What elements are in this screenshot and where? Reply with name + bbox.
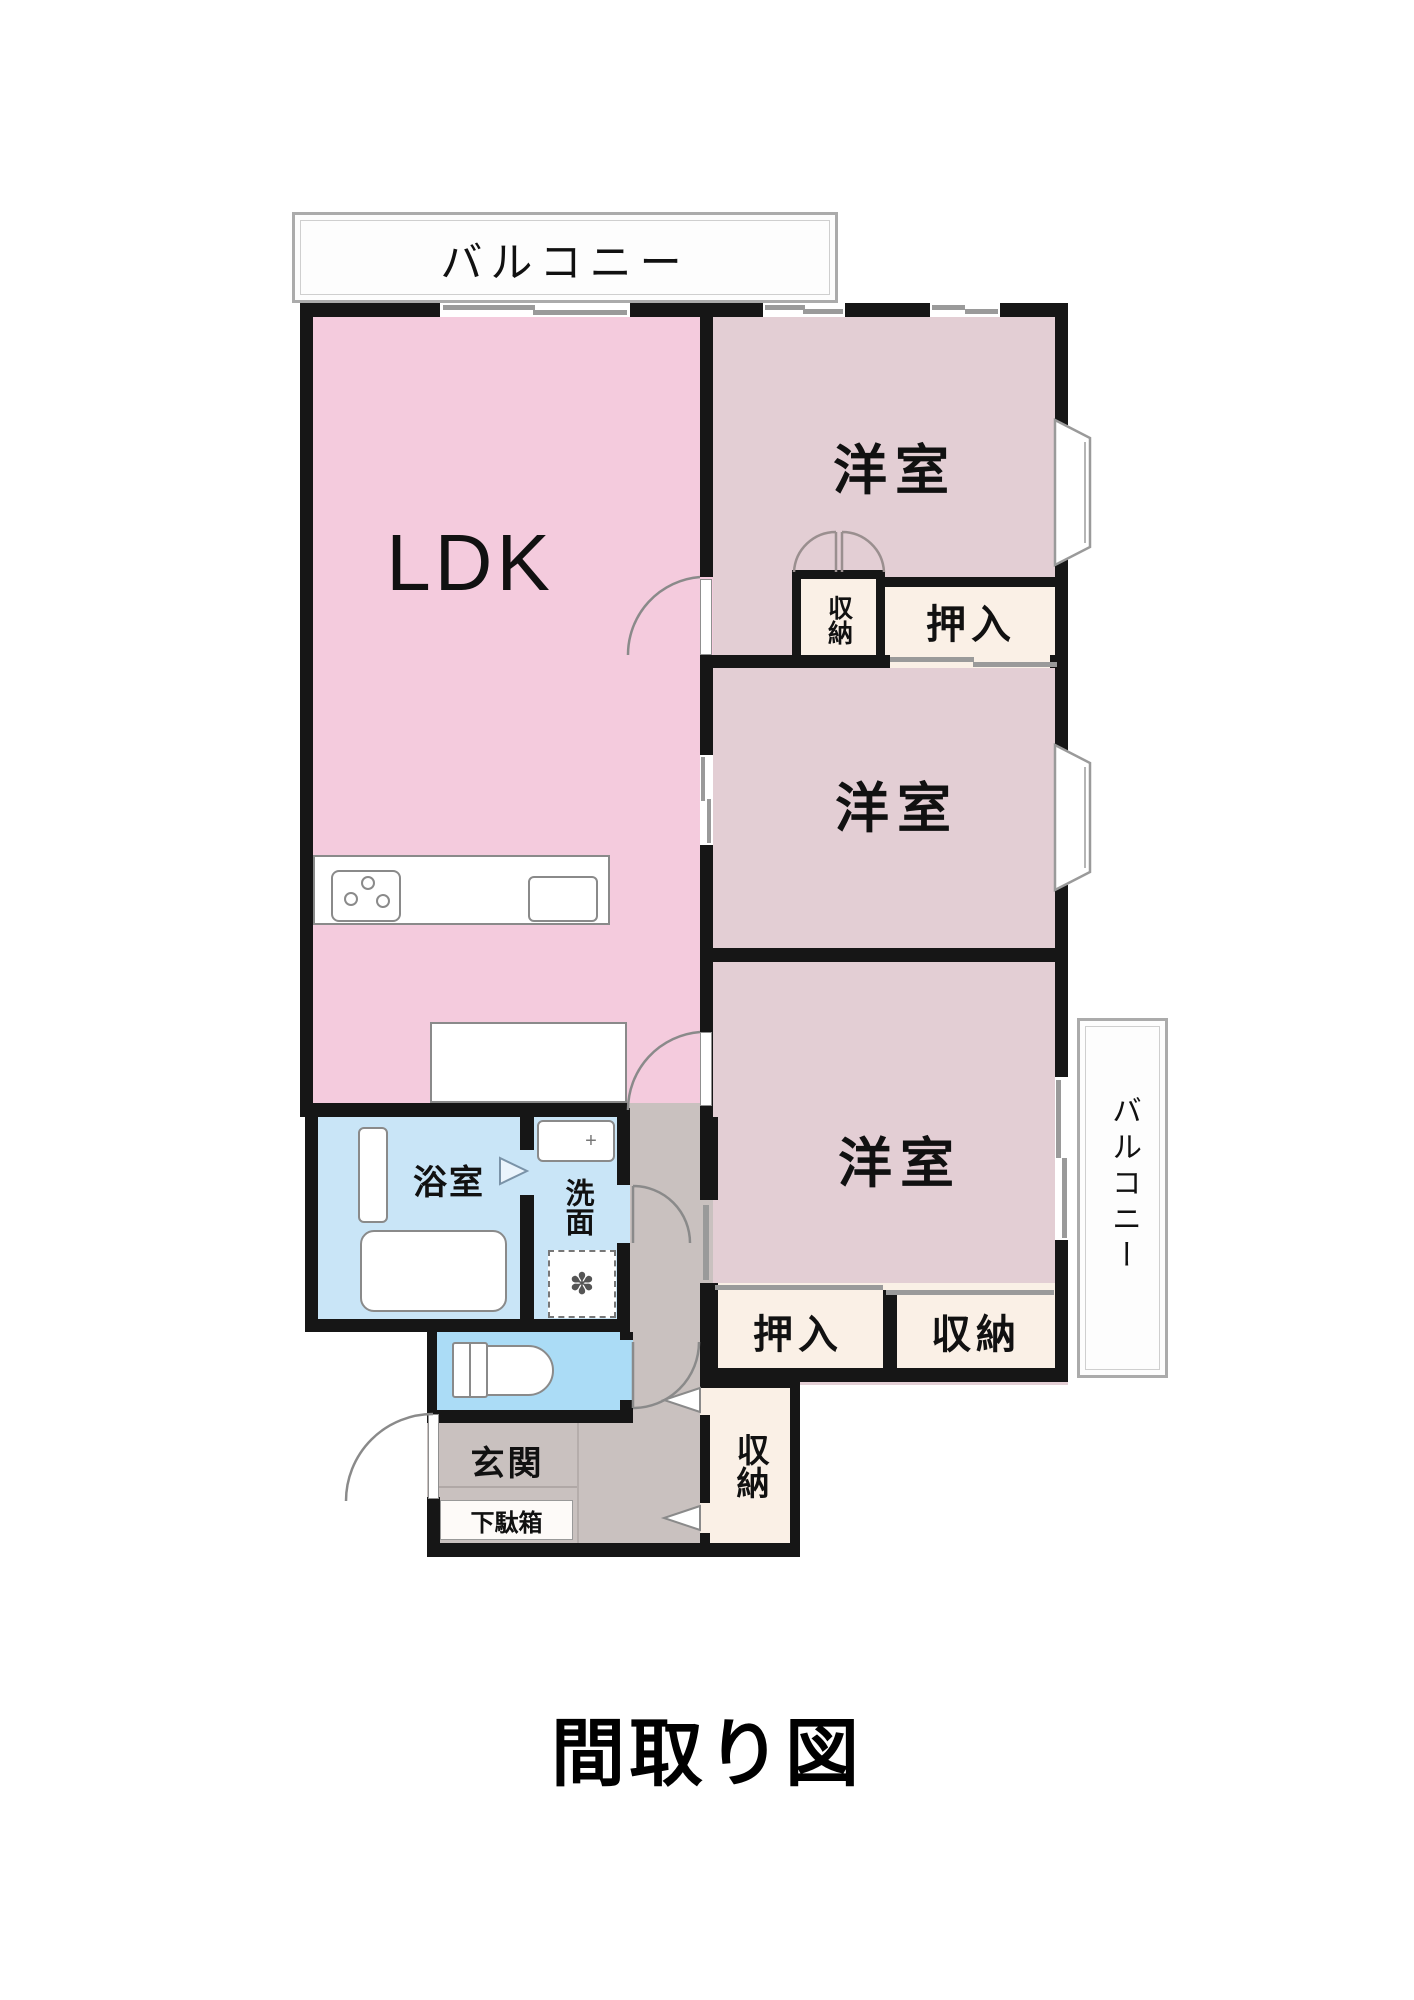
page-title: 間取り図 <box>0 1694 1414 1801</box>
wall <box>792 570 885 579</box>
sliding-window-icon <box>932 305 965 310</box>
wall <box>885 577 1057 587</box>
wall <box>700 303 713 577</box>
kitchen-sink-icon <box>528 876 598 922</box>
wall <box>520 1195 534 1332</box>
oshiire2-label: 押入 <box>713 1296 883 1366</box>
entrance-door-arc-icon <box>346 1414 433 1501</box>
shoe-cabinet-label: 下駄箱 <box>440 1500 573 1540</box>
wall <box>305 1319 630 1332</box>
toilet-bowl-icon <box>486 1345 554 1396</box>
washroom-label: 洗面 <box>548 1168 606 1246</box>
wall <box>427 1410 633 1423</box>
bathtub-icon <box>360 1230 507 1312</box>
sliding-door-icon <box>973 662 1057 667</box>
room-ldk <box>300 303 713 1117</box>
sliding-door-icon <box>701 757 705 801</box>
wall <box>700 655 713 755</box>
sliding-window-icon <box>443 305 535 310</box>
wall <box>1055 1240 1068 1378</box>
sliding-door-icon <box>890 657 974 662</box>
sliding-door-icon <box>715 1285 883 1290</box>
sliding-door-icon <box>1056 1080 1061 1158</box>
wall <box>300 303 313 1117</box>
bath-shelf <box>358 1127 388 1223</box>
sliding-door-icon <box>707 799 711 843</box>
floor-plan: バルコニー バルコニー + ✽ <box>0 0 1414 2000</box>
door-leaf <box>703 1205 709 1280</box>
balcony-top-label: バルコニー <box>292 224 838 294</box>
entrance-hall-divider <box>577 1423 579 1543</box>
room-label-ldk: LDK <box>360 518 580 608</box>
counter-table <box>430 1022 627 1103</box>
sliding-window-icon <box>965 309 998 314</box>
washing-machine-glyph: ✽ <box>548 1250 616 1318</box>
stove-burner-icon <box>361 876 375 890</box>
wall <box>427 1543 800 1557</box>
sliding-door-icon <box>1062 1158 1067 1238</box>
sliding-window-icon <box>533 310 627 315</box>
wall <box>305 1108 318 1332</box>
wall <box>617 1108 630 1185</box>
wall <box>792 570 801 668</box>
closet3-label: 収納 <box>718 1398 782 1533</box>
wall <box>883 1290 897 1370</box>
sliding-door-icon <box>886 1290 1054 1295</box>
door-leaf <box>700 1032 712 1106</box>
wall <box>1055 303 1068 425</box>
wall <box>700 1378 800 1388</box>
wall <box>790 1378 800 1553</box>
wall <box>700 1117 718 1200</box>
wall <box>620 1332 633 1340</box>
sliding-window-icon <box>765 305 805 310</box>
toilet-tank-line <box>469 1344 471 1396</box>
room-label-bedroom2: 洋室 <box>797 770 997 836</box>
stove-burner-icon <box>344 892 358 906</box>
room-label-bedroom3: 洋室 <box>800 1125 1000 1191</box>
wall <box>1055 885 1068 1077</box>
closet1-label: 収納 <box>810 582 867 658</box>
closet2-label: 収納 <box>897 1296 1055 1366</box>
door-leaf <box>428 1414 439 1499</box>
bath-label: 浴室 <box>390 1158 508 1200</box>
entrance-step-line <box>437 1486 577 1488</box>
wall <box>876 570 885 668</box>
balcony-right-label: バルコニー <box>1092 1030 1154 1340</box>
wall <box>520 1108 534 1150</box>
stove-burner-icon <box>376 894 390 908</box>
sliding-window-icon <box>803 309 843 314</box>
room-label-bedroom1: 洋室 <box>795 432 995 498</box>
door-leaf <box>700 579 712 655</box>
wall <box>300 1103 628 1117</box>
entrance-label: 玄関 <box>450 1438 565 1482</box>
oshiire1-label: 押入 <box>885 587 1057 655</box>
wall <box>700 948 1068 962</box>
wall <box>700 1415 710 1503</box>
faucet-icon: + <box>576 1128 606 1154</box>
